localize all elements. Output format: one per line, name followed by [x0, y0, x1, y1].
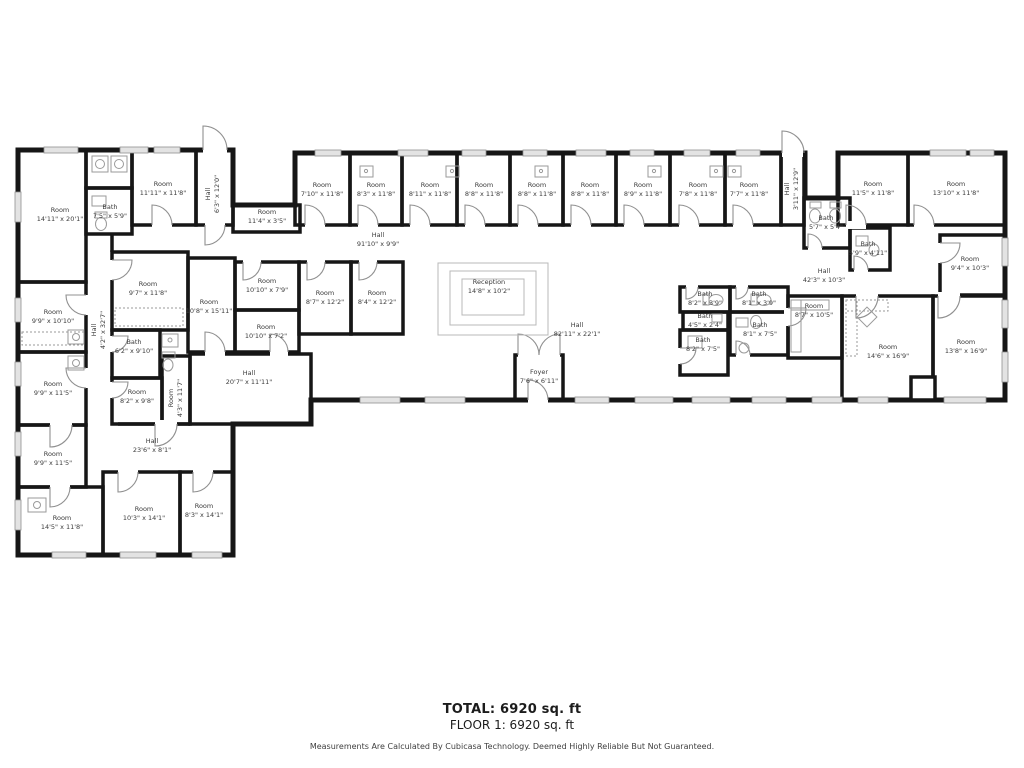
room-label: Room8'3" x 11'8": [357, 181, 395, 199]
total-area-text: TOTAL: 6920 sq. ft: [0, 702, 1024, 717]
disclaimer-text: Measurements Are Calculated By Cubicasa …: [0, 742, 1024, 751]
bath-label: Bath8'1" x 3'9": [742, 290, 776, 308]
hall-label: Hall42'3" x 10'3": [803, 267, 845, 285]
room-label: Room14'6" x 16'9": [867, 343, 909, 361]
room-label: Room11'5" x 11'8": [852, 180, 894, 198]
hall-label: Hall20'7" x 11'11": [226, 369, 272, 387]
room-label: Room9'9" x 10'10": [32, 308, 74, 326]
room-label: Room8'7" x 10'5": [795, 302, 833, 320]
bath-label: Bath8'2" x 3'9": [688, 290, 722, 308]
room-label: Room8'8" x 11'8": [465, 181, 503, 199]
room-label: Room14'5" x 11'8": [41, 514, 83, 532]
hall-label: Hall23'6" x 8'1": [133, 437, 171, 455]
room-label: Room8'2" x 9'8": [120, 388, 154, 406]
room-label: Room7'8" x 11'8": [679, 181, 717, 199]
room-label: Room8'8" x 11'8": [518, 181, 556, 199]
room-label: Room8'4" x 12'2": [358, 289, 396, 307]
room-label: Room9'9" x 11'5": [34, 450, 72, 468]
hall-label: Hall91'10" x 9'9": [357, 231, 399, 249]
floorplan-page: Room14'11" x 20'1" Bath7'5" x 5'9" Room1…: [0, 0, 1024, 768]
room-label: Room14'11" x 20'1": [37, 206, 83, 224]
room-label: Room11'4" x 3'5": [248, 208, 286, 226]
room-label: Room13'8" x 16'9": [945, 338, 987, 356]
room-label: Room10'3" x 14'1": [123, 505, 165, 523]
reception-desk: [438, 263, 548, 335]
room-label: Room13'10" x 11'8": [933, 180, 979, 198]
room-label: Room10'10" x 7'9": [246, 277, 288, 295]
reception-label: Reception14'8" x 10'2": [468, 278, 510, 296]
foyer-label: Foyer7'6" x 6'11": [520, 368, 558, 386]
footer: TOTAL: 6920 sq. ft FLOOR 1: 6920 sq. ft …: [0, 702, 1024, 751]
room-label: Room8'11" x 11'8": [409, 181, 451, 199]
room-label: Room8'8" x 11'8": [571, 181, 609, 199]
room-label: Room10'8" x 15'11": [186, 298, 232, 316]
bath-label: Bath5'7" x 5'4": [809, 214, 843, 232]
floorplan-drawing: [0, 0, 1024, 768]
wall-notch: [911, 377, 935, 400]
hall-label: Hall6'3" x 12'0": [204, 175, 222, 213]
room-label: Room4'3" x 11'7": [167, 379, 185, 417]
room-label: Room9'9" x 11'5": [34, 380, 72, 398]
room-label: Room7'7" x 11'8": [730, 181, 768, 199]
room-label: Room8'9" x 11'8": [624, 181, 662, 199]
bath-label: Bath6'2" x 9'10": [115, 338, 153, 356]
bath-label: Bath8'1" x 7'5": [743, 321, 777, 339]
room-label: Room9'7" x 11'8": [129, 280, 167, 298]
room-label: Room8'3" x 14'1": [185, 502, 223, 520]
bath-label: Bath4'5" x 2'4": [688, 312, 722, 330]
room-label: Room9'4" x 10'3": [951, 255, 989, 273]
hall-label: Hall3'11" x 12'9": [783, 168, 801, 210]
room-label: Room11'11" x 11'8": [140, 180, 186, 198]
hall-label: Hall82'11" x 22'1": [554, 321, 600, 339]
bath-label: Bath7'5" x 5'9": [93, 203, 127, 221]
room-label: Room8'7" x 12'2": [306, 289, 344, 307]
hall-label: Hall4'2" x 32'7": [90, 311, 108, 349]
floor-area-text: FLOOR 1: 6920 sq. ft: [0, 718, 1024, 732]
bath-label: Bath5'9" x 4'11": [849, 240, 887, 258]
room-label: Room10'10" x 7'2": [245, 323, 287, 341]
bath-label: Bath8'2" x 7'5": [686, 336, 720, 354]
room-label: Room7'10" x 11'8": [301, 181, 343, 199]
